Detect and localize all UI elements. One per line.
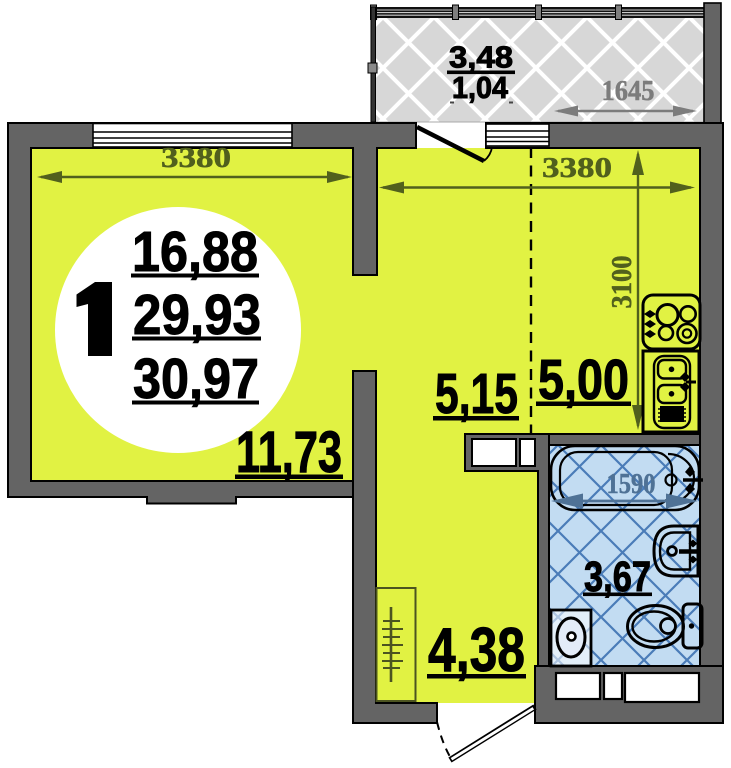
svg-text:1,04: 1,04 <box>452 70 509 105</box>
svg-text:3380: 3380 <box>161 142 231 174</box>
svg-text:1645: 1645 <box>602 76 655 107</box>
svg-text:1590: 1590 <box>607 468 656 500</box>
svg-text:3100: 3100 <box>607 256 638 309</box>
svg-text:3380: 3380 <box>542 152 612 184</box>
